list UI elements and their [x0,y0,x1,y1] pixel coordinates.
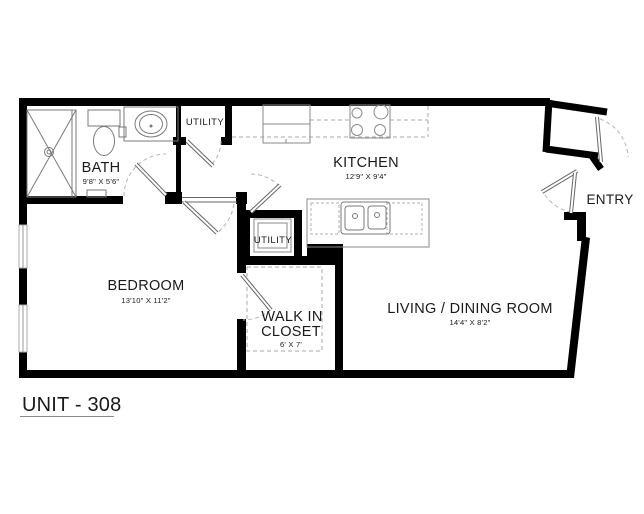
floor-plan-page: BATH 9'8" X 5'6" UTILITY KITCHEN 12'9" X… [0,0,644,514]
utility-closet-right-wall [294,218,302,258]
left-wall-upper [19,98,27,225]
entry-door [542,171,577,213]
entry-label: ENTRY [586,192,633,207]
bath-label: BATH [82,160,121,176]
island-end-stub-wall [307,244,343,258]
angled-right-wall [566,236,590,378]
left-wall-mid [19,268,27,305]
utility-hall-door [187,141,221,166]
range-stove [350,105,390,138]
floor-plan-svg: BATH 9'8" X 5'6" UTILITY KITCHEN 12'9" X… [0,0,644,514]
bottom-wall [19,370,574,378]
bedroom-door [182,198,237,234]
kitchen-fixtures [232,105,429,252]
walk-in-closet-label-line1: WALK IN [261,309,322,325]
entry-closet-door [597,117,628,162]
unit-title: UNIT - 308 [22,394,121,416]
bath-dims: 9'8" X 5'6" [83,177,120,186]
counter-dashed [232,106,428,137]
kitchen-label: KITCHEN [333,155,399,171]
toilet [88,110,120,156]
utility-hall-label: UTILITY [186,117,224,128]
bedroom-label: BEDROOM [107,278,184,294]
kitchen-dims: 12'9" X 9'4" [345,172,386,181]
utility-closet-label: UTILITY [254,235,292,246]
island-double-sink [341,202,390,234]
bedroom-window-lower [19,305,27,352]
unit-title-block: UNIT - 308 [20,394,121,417]
bedroom-window-upper [19,225,27,268]
living-left-wall [335,265,343,378]
utility-hall-right-stub [221,137,232,145]
entry-jog-horizontal [564,212,586,220]
living-dining-label: LIVING / DINING ROOM [387,301,553,317]
bedroom-right-wall-lower [237,319,246,378]
utility-hall-right-wall [225,106,232,139]
living-dining-dims: 14'4" X 8'2" [449,318,490,327]
kitchen-hall-door [251,174,280,212]
bathroom-vanity-sink [119,107,178,141]
towel-bar [87,190,106,197]
shower [27,110,76,197]
bath-door [124,154,166,196]
entry-jog-vertical [577,219,586,241]
walk-in-closet-dims: 6' X 7' [280,340,302,349]
walk-in-closet-label-line2: CLOSET [261,324,321,340]
bedroom-dims: 13'10" X 11'2" [121,296,170,305]
